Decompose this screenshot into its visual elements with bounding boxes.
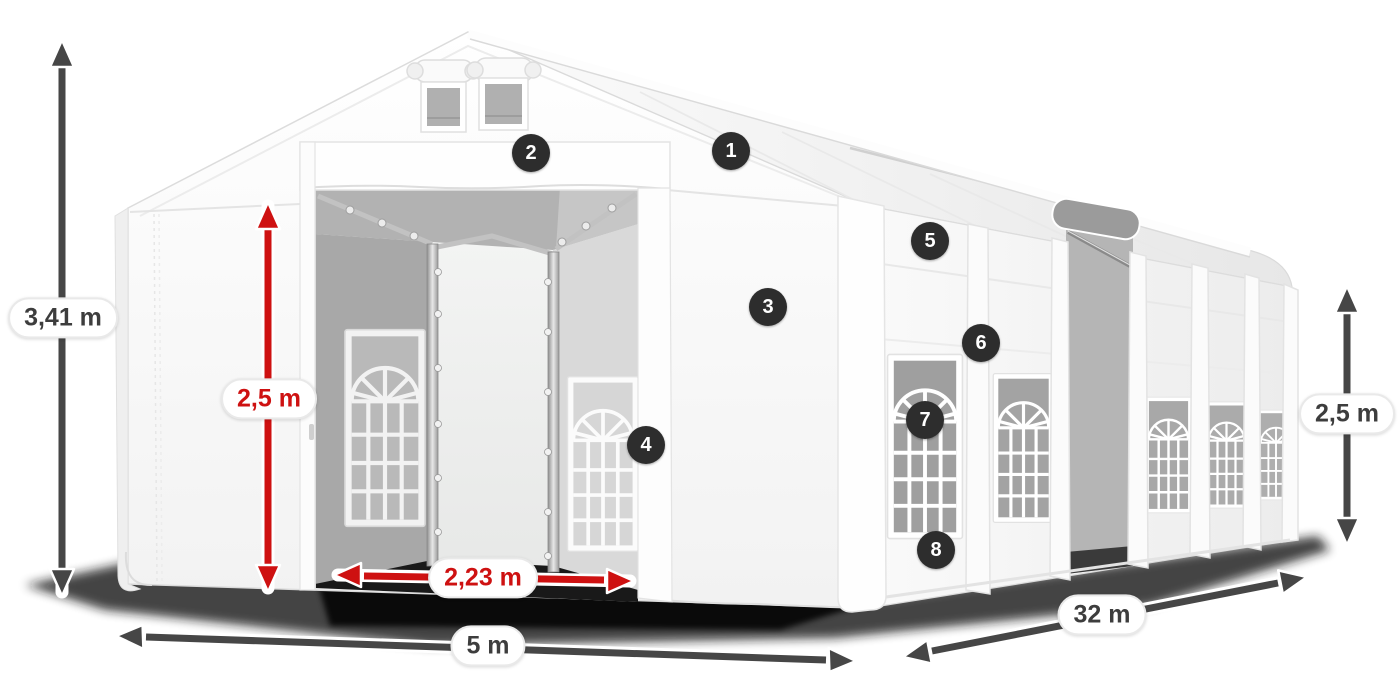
interior-mesh-window-left xyxy=(345,330,425,527)
entrance-lintel xyxy=(300,142,670,190)
dim-side-height: 2,5 m xyxy=(1299,393,1395,434)
callout-badge-1: 1 xyxy=(712,132,750,170)
badge-2-number: 2 xyxy=(525,142,536,165)
dim-front-width: 5 m xyxy=(450,625,525,666)
dim-length: 32 m xyxy=(1058,594,1147,635)
callout-badge-4: 4 xyxy=(627,426,665,464)
callout-badge-7: 7 xyxy=(906,401,944,439)
badge-5-number: 5 xyxy=(924,230,935,253)
dim-side-height-value: 2,5 m xyxy=(1315,399,1379,427)
dim-total-height-value: 3,41 m xyxy=(24,303,102,331)
dim-entrance-width-value: 2,23 m xyxy=(444,563,522,591)
entrance-post-right xyxy=(638,188,672,602)
tent-dimension-diagram: 3,41 m 2,5 m 2,23 m 5 m 32 m 2,5 m 1 2 3… xyxy=(0,0,1400,700)
callout-badge-2: 2 xyxy=(512,134,550,172)
badge-1-number: 1 xyxy=(725,140,736,163)
callout-badge-3: 3 xyxy=(749,288,787,326)
entrance-post-left xyxy=(300,142,315,590)
front-entrance-interior xyxy=(315,186,639,606)
badge-7-number: 7 xyxy=(919,409,930,432)
corner-post xyxy=(838,196,886,612)
door-handle xyxy=(309,424,314,440)
dim-entrance-height: 2,5 m xyxy=(221,378,317,419)
callout-badge-5: 5 xyxy=(911,222,949,260)
badge-8-number: 8 xyxy=(930,539,941,562)
badge-4-number: 4 xyxy=(640,434,651,457)
interior-mesh-window-right xyxy=(567,377,638,552)
dim-length-value: 32 m xyxy=(1074,600,1131,628)
badge-6-number: 6 xyxy=(975,332,986,355)
dim-total-height: 3,41 m xyxy=(8,297,118,338)
callout-badge-6: 6 xyxy=(962,324,1000,362)
callout-badge-8: 8 xyxy=(917,531,955,569)
dim-entrance-height-value: 2,5 m xyxy=(237,384,301,412)
badge-3-number: 3 xyxy=(762,296,773,319)
tent-illustration xyxy=(0,0,1400,700)
dim-entrance-width: 2,23 m xyxy=(428,557,538,598)
dim-front-width-value: 5 m xyxy=(466,631,509,659)
